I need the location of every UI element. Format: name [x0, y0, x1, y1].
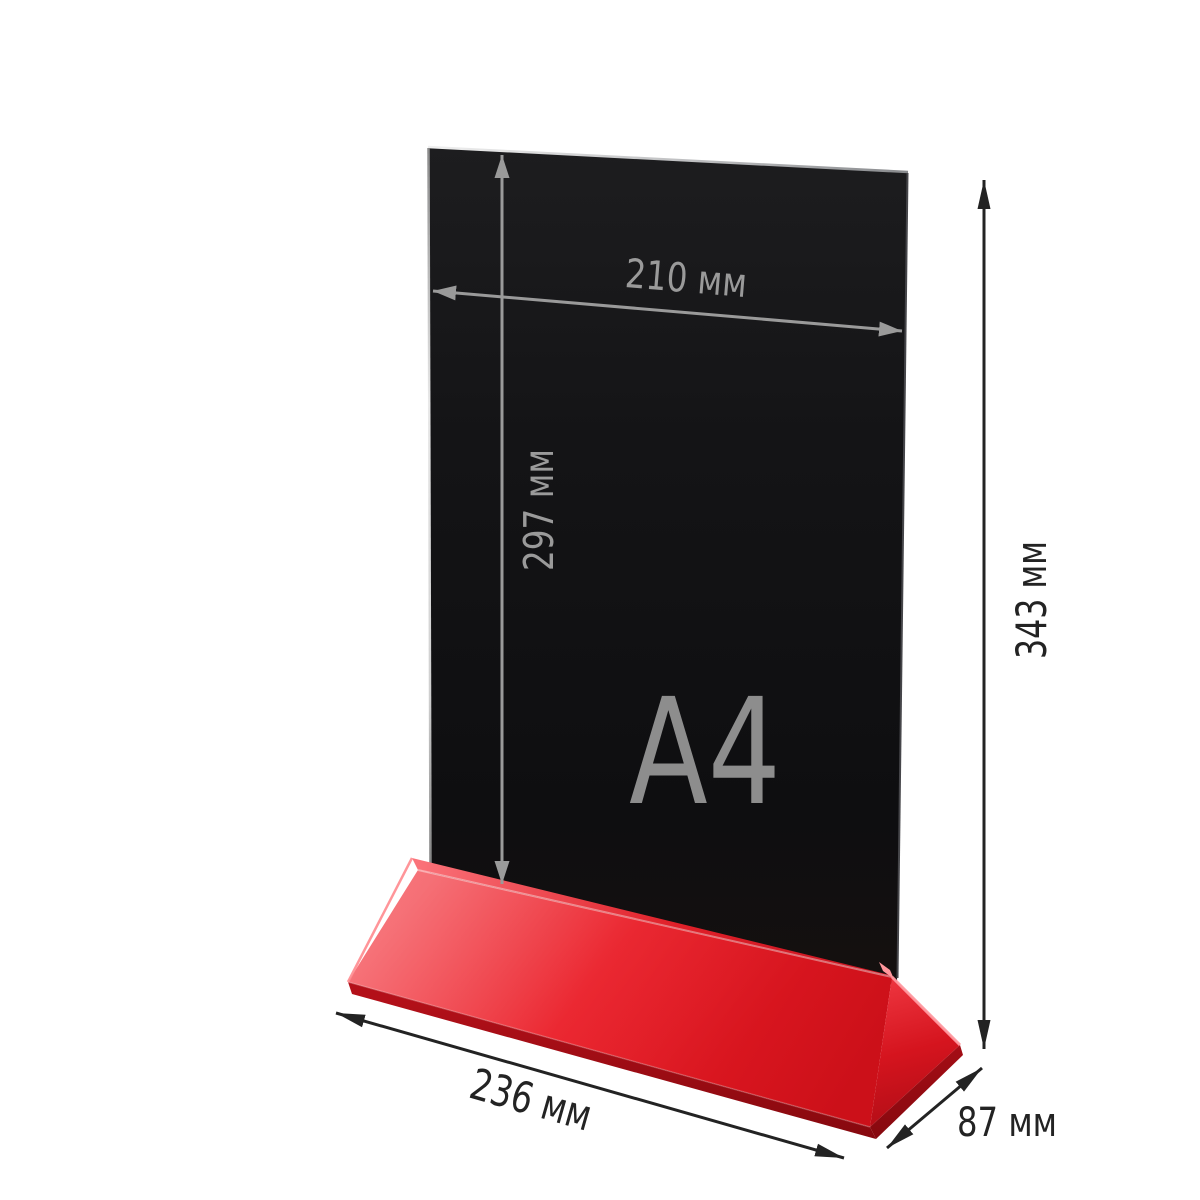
total-height-dimension-label: 343 мм	[1007, 541, 1056, 659]
diagram-canvas: A4 210 мм 297 мм 343 мм 236 мм 87 мм	[0, 0, 1200, 1200]
base-length-dimension-label: 236 мм	[464, 1060, 597, 1142]
base-depth-dimension-label: 87 мм	[957, 1100, 1057, 1146]
format-watermark: A4	[629, 667, 781, 838]
insert-height-dimension-label: 297 мм	[515, 449, 563, 571]
product-dimension-diagram: A4 210 мм 297 мм 343 мм 236 мм 87 мм	[0, 0, 1200, 1200]
